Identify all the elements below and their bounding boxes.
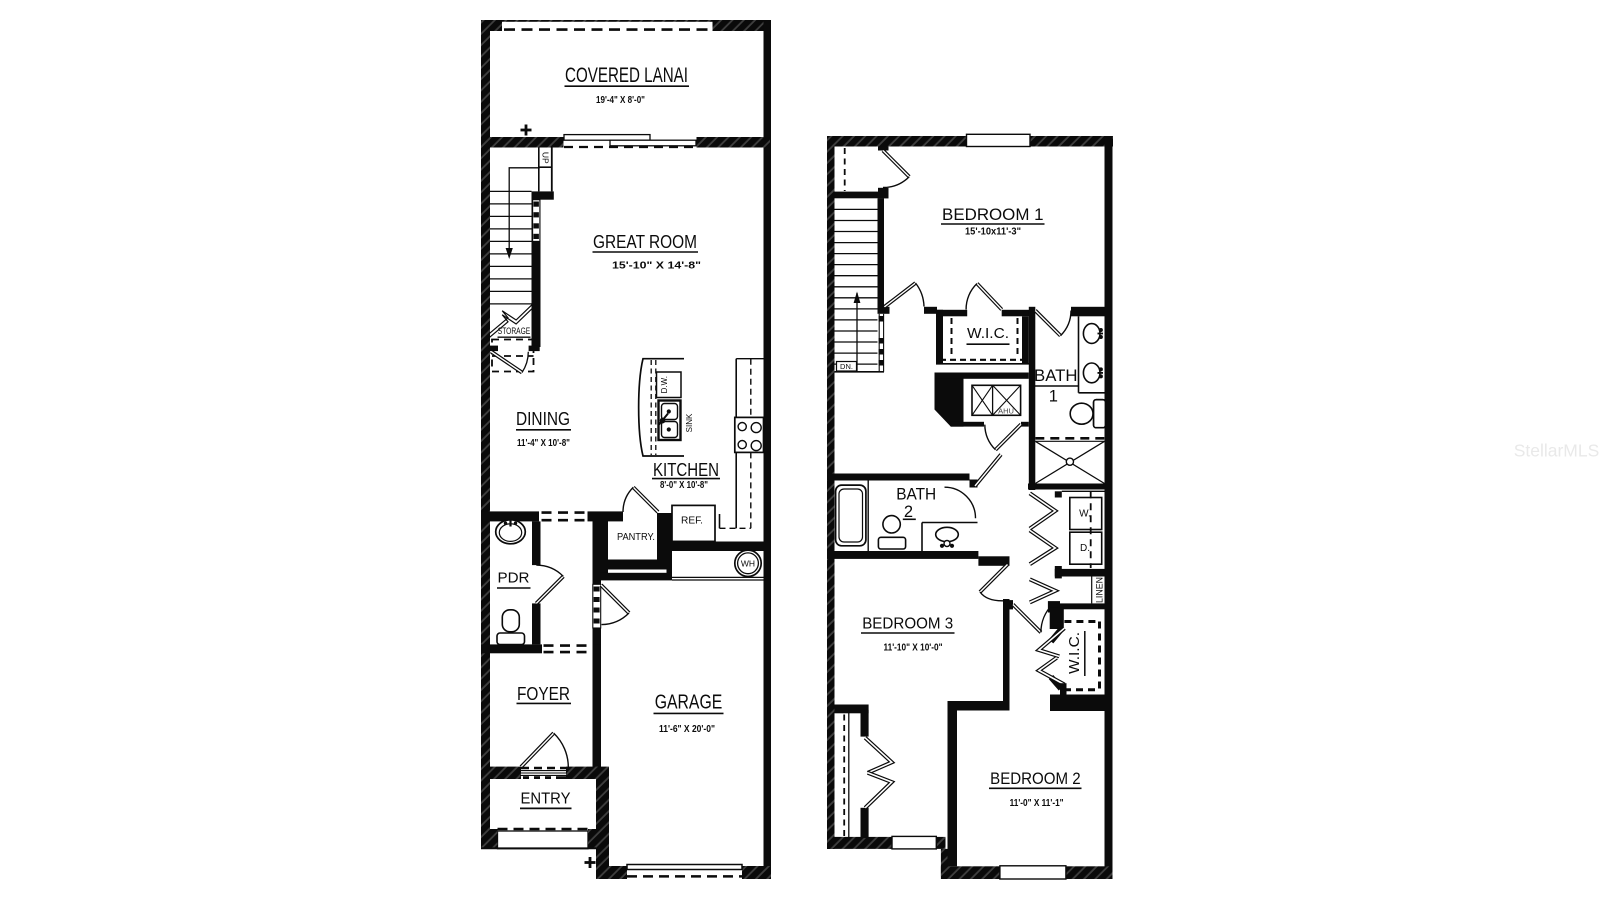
svg-text:StellarMLS: StellarMLS — [1514, 441, 1600, 461]
svg-text:REF.: REF. — [681, 516, 703, 527]
svg-text:AHU: AHU — [998, 407, 1014, 416]
svg-text:PANTRY.: PANTRY. — [617, 532, 655, 543]
svg-text:BEDROOM 3: BEDROOM 3 — [862, 616, 953, 633]
svg-text:11'-4" X 10'-8": 11'-4" X 10'-8" — [517, 438, 570, 449]
svg-text:LINEN: LINEN — [1095, 577, 1106, 603]
svg-text:COVERED LANAI: COVERED LANAI — [565, 64, 688, 87]
svg-text:FOYER: FOYER — [517, 684, 570, 704]
svg-text:BATH: BATH — [1034, 367, 1078, 385]
svg-text:PDR: PDR — [498, 569, 530, 586]
svg-text:D.W.: D.W. — [660, 376, 669, 393]
svg-text:19'-4" X 8'-0": 19'-4" X 8'-0" — [596, 95, 645, 106]
svg-text:D.: D. — [1080, 543, 1090, 554]
svg-text:GREAT ROOM: GREAT ROOM — [593, 232, 697, 252]
svg-text:11'-0" X 11'-1": 11'-0" X 11'-1" — [1010, 798, 1064, 809]
svg-text:GARAGE: GARAGE — [655, 692, 723, 714]
svg-text:UP: UP — [540, 152, 550, 164]
svg-text:15'-10x11'-3": 15'-10x11'-3" — [965, 226, 1021, 237]
svg-text:W.: W. — [1079, 508, 1091, 519]
svg-text:KITCHEN: KITCHEN — [653, 460, 719, 480]
svg-text:SINK: SINK — [685, 413, 694, 432]
svg-text:W.I.C.: W.I.C. — [1066, 632, 1083, 674]
svg-text:1: 1 — [1049, 388, 1058, 406]
svg-text:DN.: DN. — [840, 362, 853, 371]
svg-text:W.I.C.: W.I.C. — [967, 325, 1009, 342]
svg-text:11'-6" X 20'-0": 11'-6" X 20'-0" — [659, 724, 715, 735]
svg-text:STORAGE: STORAGE — [498, 326, 531, 336]
svg-text:ENTRY: ENTRY — [521, 790, 571, 807]
svg-text:15'-10" X 14'-8": 15'-10" X 14'-8" — [612, 261, 701, 272]
svg-text:11'-10" X 10'-0": 11'-10" X 10'-0" — [884, 642, 943, 653]
svg-text:WH: WH — [741, 558, 755, 568]
svg-text:DINING: DINING — [516, 409, 570, 429]
svg-text:BEDROOM 1: BEDROOM 1 — [942, 206, 1044, 224]
svg-text:BEDROOM 2: BEDROOM 2 — [990, 770, 1081, 788]
svg-text:8'-0" X 10'-8": 8'-0" X 10'-8" — [660, 480, 708, 491]
svg-text:BATH: BATH — [896, 486, 936, 504]
